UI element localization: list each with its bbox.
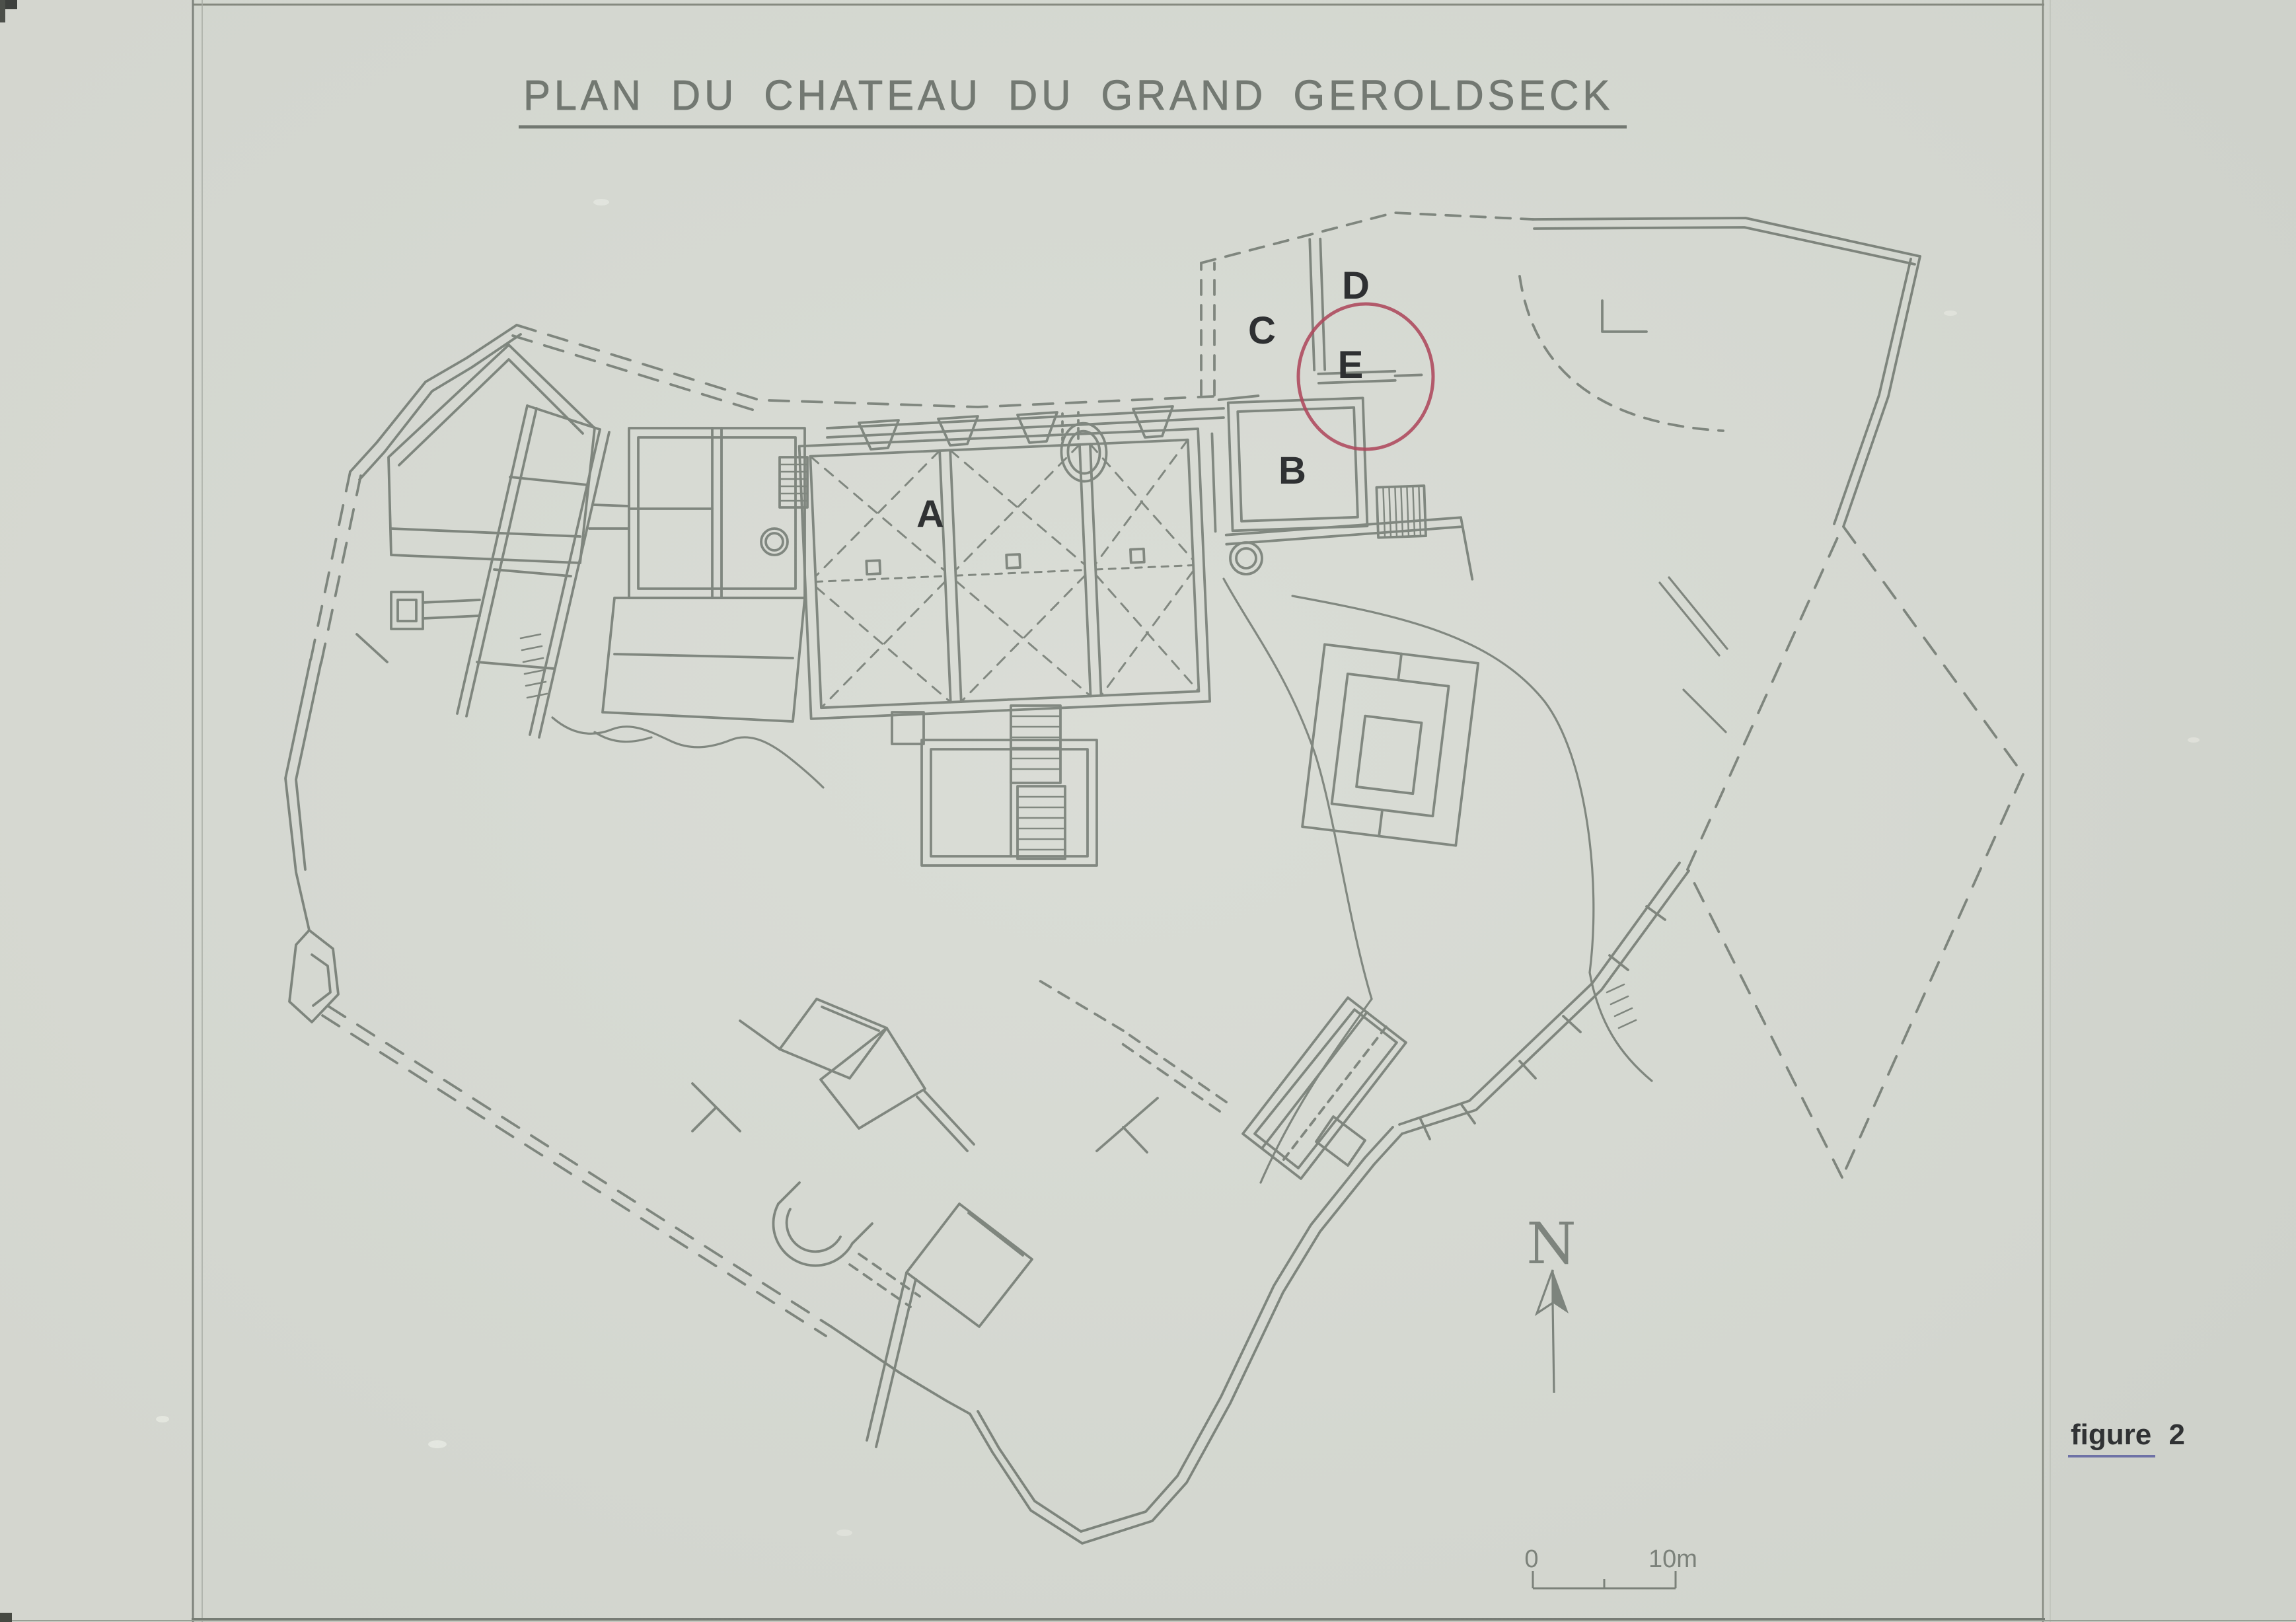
room-label-E: E bbox=[1338, 344, 1364, 387]
figure-caption-block: figure 2 bbox=[2068, 1419, 2185, 1456]
room-label-C: C bbox=[1248, 309, 1276, 352]
north-label: N bbox=[1526, 1211, 1576, 1277]
plan-drawing-canvas: PLAN DU CHATEAU DU GRAND GEROLDSECK bbox=[0, 0, 2296, 1622]
figure-caption: figure 2 bbox=[2071, 1419, 2185, 1451]
room-label-A: A bbox=[916, 493, 944, 536]
room-label-B: B bbox=[1278, 449, 1306, 492]
scale-end-label: 10m bbox=[1648, 1545, 1697, 1573]
page-title: PLAN DU CHATEAU DU GRAND GEROLDSECK bbox=[523, 71, 1613, 119]
scanned-plan-sheet: PLAN DU CHATEAU DU GRAND GEROLDSECK bbox=[0, 0, 2296, 1622]
title-block: PLAN DU CHATEAU DU GRAND GEROLDSECK bbox=[519, 71, 1627, 127]
paper-background bbox=[0, 0, 2296, 1622]
scale-start-label: 0 bbox=[1524, 1545, 1538, 1573]
room-label-D: D bbox=[1342, 264, 1370, 307]
